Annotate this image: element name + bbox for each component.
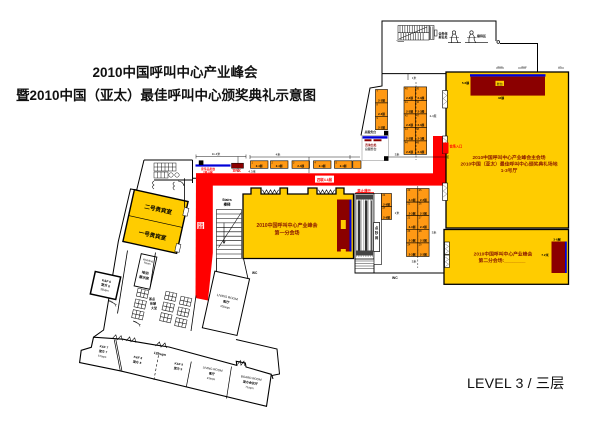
- svg-text:总服务台: 总服务台: [365, 146, 377, 151]
- svg-text:2-3展: 2-3展: [417, 110, 424, 114]
- svg-text:2-3展: 2-3展: [420, 225, 427, 229]
- svg-text:报名处: 报名处: [438, 34, 447, 39]
- svg-text:大堂: 大堂: [151, 305, 157, 310]
- svg-text:2010中国呼叫中心产业峰会: 2010中国呼叫中心产业峰会: [256, 222, 317, 229]
- svg-text:2-4展: 2-4展: [276, 164, 283, 168]
- svg-text:总服务台: 总服务台: [365, 129, 377, 134]
- svg-text:2-3展: 2-3展: [378, 126, 385, 130]
- svg-text:2-4展: 2-4展: [340, 164, 347, 168]
- svg-text:2-3展: 2-3展: [430, 114, 437, 118]
- svg-text:(7): (7): [559, 67, 562, 69]
- svg-text:2-4展: 2-4展: [297, 164, 304, 168]
- svg-text:7.2米: 7.2米: [541, 252, 549, 257]
- svg-text:2-4展: 2-4展: [256, 164, 263, 168]
- svg-text:Stairs: Stairs: [222, 198, 232, 202]
- svg-text:(5)(2): (5)(2): [497, 67, 503, 69]
- svg-text:2-9展: 2-9展: [383, 215, 390, 219]
- svg-text:3米: 3米: [395, 152, 400, 157]
- svg-text:1米: 1米: [395, 210, 400, 215]
- svg-text:2-3展: 2-3展: [409, 212, 416, 216]
- svg-text:2-3展: 2-3展: [378, 99, 385, 103]
- svg-text:2-3展: 2-3展: [409, 252, 416, 256]
- svg-text:3米: 3米: [412, 259, 417, 264]
- svg-text:2-3展: 2-3展: [417, 123, 424, 127]
- svg-text:会场入口: 会场入口: [450, 144, 463, 149]
- svg-text:WC: WC: [252, 271, 258, 275]
- svg-text:接待区: 接待区: [477, 33, 486, 38]
- svg-text:2-3展: 2-3展: [417, 137, 424, 141]
- svg-text:5-6展: 5-6展: [462, 80, 469, 85]
- svg-text:第一分会场: 第一分会场: [274, 230, 299, 237]
- svg-text:茶点: 茶点: [148, 296, 155, 301]
- svg-text:宣传区: 宣传区: [233, 169, 242, 173]
- svg-text:2-3展: 2-3展: [417, 96, 424, 100]
- svg-text:2-3展: 2-3展: [420, 252, 427, 256]
- svg-text:2-3展: 2-3展: [406, 123, 413, 127]
- svg-text:2-3展: 2-3展: [420, 239, 427, 243]
- svg-text:2010中国呼叫中心产业峰会: 2010中国呼叫中心产业峰会: [474, 250, 533, 257]
- svg-text:3米: 3米: [432, 230, 437, 235]
- svg-text:4.3米: 4.3米: [248, 169, 255, 174]
- svg-text:2-3展: 2-3展: [406, 110, 413, 114]
- svg-text:楼梯: 楼梯: [224, 202, 231, 207]
- svg-text:4米: 4米: [276, 152, 281, 157]
- svg-text:禁止通行: 禁止通行: [357, 188, 371, 193]
- svg-text:2-4展: 2-4展: [319, 164, 326, 168]
- svg-text:2-3展: 2-3展: [409, 198, 416, 202]
- svg-text:2-3展: 2-3展: [420, 212, 427, 216]
- svg-text:2-3展: 2-3展: [406, 150, 413, 154]
- svg-text:2-3展: 2-3展: [409, 225, 416, 229]
- svg-text:2-9展: 2-9展: [383, 202, 390, 206]
- svg-text:第二分会场:________: 第二分会场:________: [479, 257, 526, 264]
- svg-text:(5)(2): (5)(2): [521, 67, 527, 69]
- svg-text:42展: 42展: [498, 95, 504, 100]
- svg-text:1-3号厅: 1-3号厅: [501, 167, 518, 174]
- svg-text:通道: 通道: [198, 225, 204, 229]
- svg-text:7展-8展: 7展-8展: [203, 171, 213, 175]
- svg-text:3-6展: 3-6展: [553, 237, 560, 242]
- svg-text:四联4-6展: 四联4-6展: [317, 177, 333, 182]
- svg-text:2-3展: 2-3展: [406, 137, 413, 141]
- svg-text:2010中国呼叫中心产业峰会主会场: 2010中国呼叫中心产业峰会主会场: [472, 154, 545, 161]
- svg-text:WC: WC: [392, 276, 398, 280]
- svg-text:舞台: 舞台: [497, 81, 503, 86]
- svg-text:2-3展: 2-3展: [420, 198, 427, 202]
- svg-text:2010中国（亚太）最佳呼叫中心颁奖典礼场地: 2010中国（亚太）最佳呼叫中心颁奖典礼场地: [460, 161, 557, 168]
- svg-text:2-3展: 2-3展: [417, 150, 424, 154]
- svg-text:2-3展: 2-3展: [378, 112, 385, 116]
- svg-text:11.4米: 11.4米: [212, 151, 221, 156]
- svg-text:2-3展: 2-3展: [409, 239, 416, 243]
- svg-text:2-3展: 2-3展: [406, 96, 413, 100]
- svg-text:1米: 1米: [412, 76, 417, 80]
- svg-text:休憩: 休憩: [149, 301, 156, 306]
